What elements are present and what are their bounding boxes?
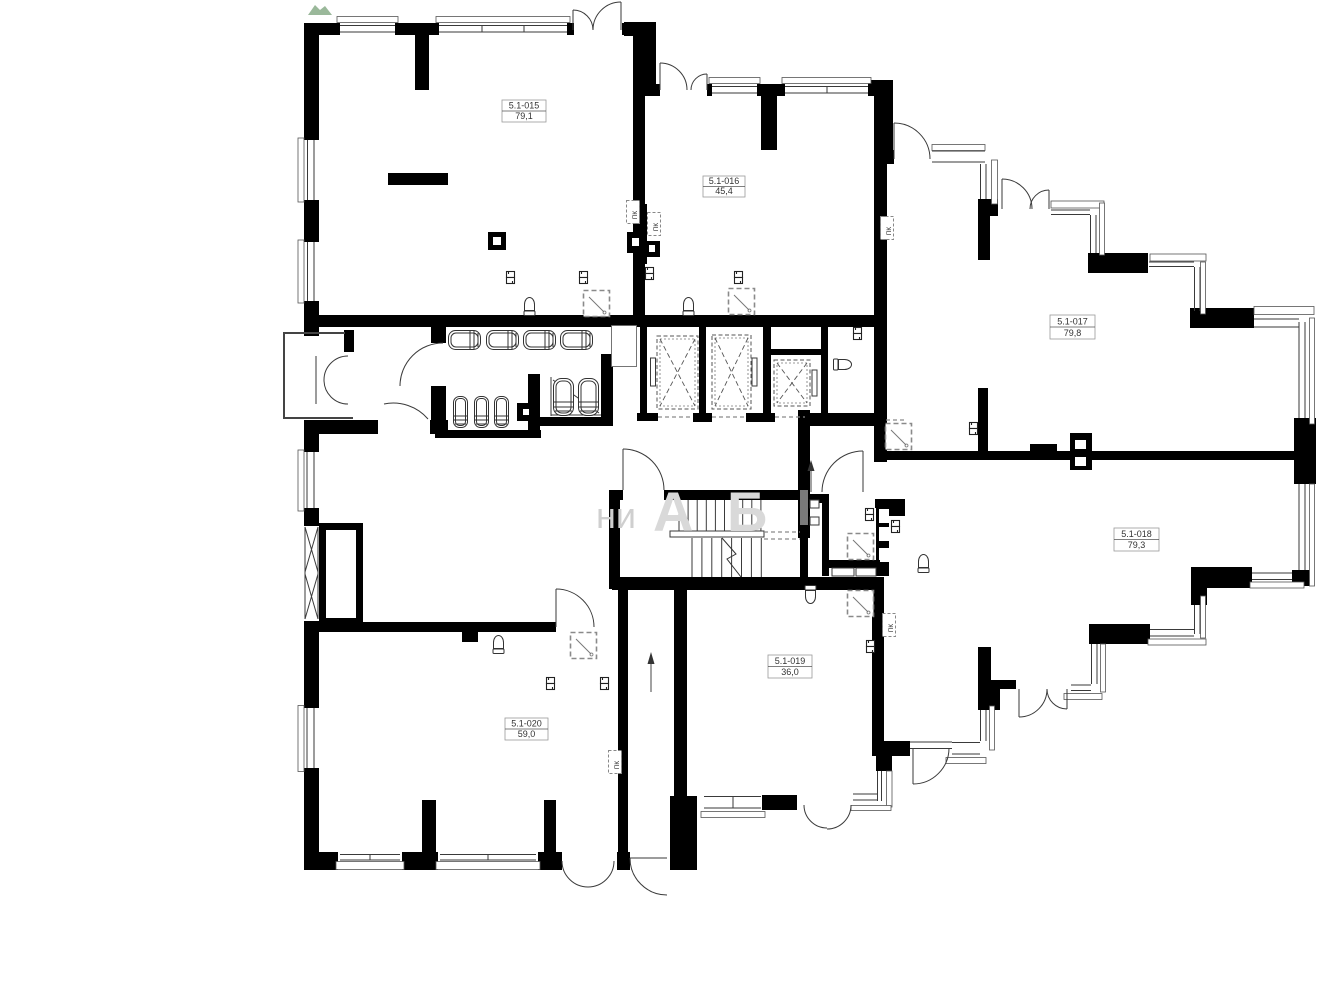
svg-text:79,1: 79,1 xyxy=(515,111,533,121)
svg-text:36,0: 36,0 xyxy=(781,667,799,677)
svg-text:59,0: 59,0 xyxy=(518,729,536,739)
svg-text:5.1-016: 5.1-016 xyxy=(709,176,740,186)
svg-text:5.1-017: 5.1-017 xyxy=(1057,317,1088,327)
svg-text:45,4: 45,4 xyxy=(715,186,733,196)
svg-text:А: А xyxy=(653,480,693,543)
svg-text:5.1-020: 5.1-020 xyxy=(511,719,542,729)
svg-text:5.1-019: 5.1-019 xyxy=(775,656,806,666)
svg-text:ни: ни xyxy=(596,495,636,536)
svg-text:5.1-015: 5.1-015 xyxy=(509,101,540,111)
svg-text:Б: Б xyxy=(727,480,767,543)
svg-text:79,8: 79,8 xyxy=(1064,328,1082,338)
svg-text:5.1-018: 5.1-018 xyxy=(1121,529,1152,539)
svg-text:79,3: 79,3 xyxy=(1128,540,1146,550)
